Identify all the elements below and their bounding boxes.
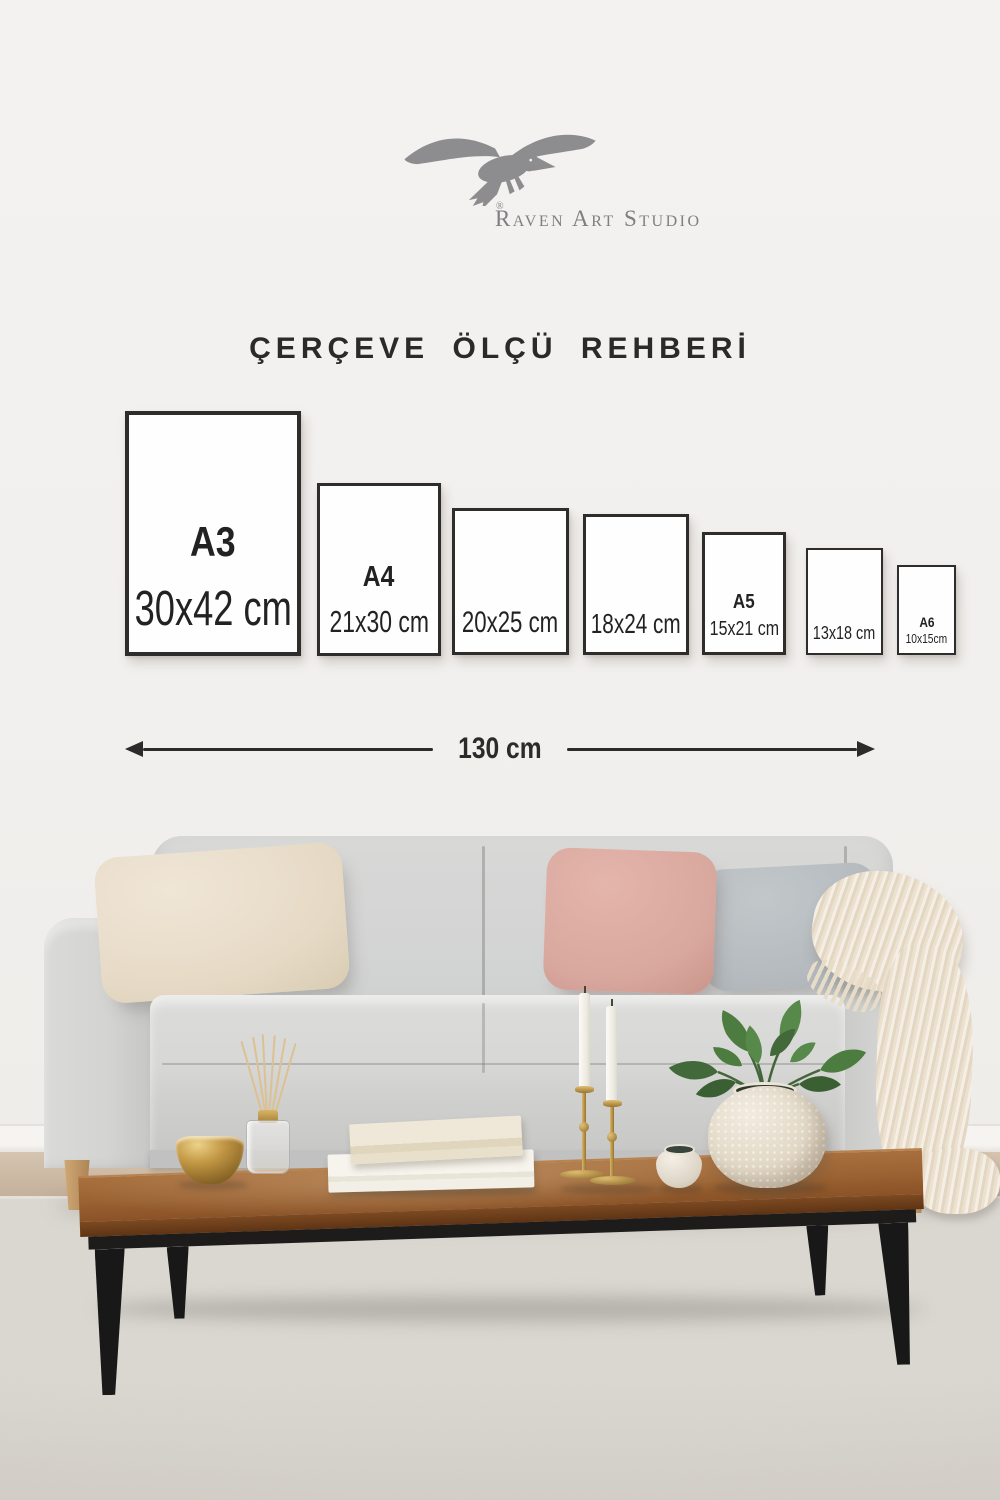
cream-pillow [93, 842, 351, 1005]
size-guide-title: ÇERÇEVE ÖLÇÜ REHBERİ [0, 332, 1000, 366]
frame-label: A5 [733, 592, 755, 612]
candlestick-cup [575, 1086, 594, 1093]
ruler-line [567, 748, 857, 751]
cup-opening [664, 1144, 695, 1155]
size-frame-18x24: 18x24 cm [583, 514, 689, 655]
candlestick-knob [579, 1122, 589, 1132]
knit-throw-floor-curl [912, 1148, 1000, 1214]
table-leg [806, 1225, 830, 1296]
frame-dimensions: 13x18 cm [813, 624, 875, 642]
frame-dimensions: 20x25 cm [462, 608, 558, 638]
candlestick-knob [607, 1132, 617, 1142]
frame-dimensions: 10x15cm [906, 633, 948, 646]
arrowhead-left-icon [125, 737, 143, 761]
taper-candle [606, 1006, 617, 1105]
rug-shading [0, 1380, 1000, 1500]
size-frame-20x25: 20x25 cm [452, 508, 569, 655]
sofa-width-ruler: 130 cm [125, 734, 875, 764]
candlestick-cup [603, 1100, 622, 1107]
table-leg [167, 1246, 191, 1319]
candlestick-base [590, 1176, 636, 1185]
pink-pillow [543, 847, 718, 995]
frame-dimensions: 21x30 cm [329, 606, 428, 637]
product-size-guide-image: Raven Art Studio® ÇERÇEVE ÖLÇÜ REHBERİ A… [0, 0, 1000, 1500]
size-frame-a3: A3 30x42 cm [125, 411, 301, 656]
frame-label: A6 [919, 615, 934, 629]
frame-label: A3 [190, 521, 236, 563]
frame-dimensions: 15x21 cm [709, 619, 778, 639]
size-frame-a5: A5 15x21 cm [702, 532, 786, 655]
taper-candle [579, 993, 590, 1089]
candles-shadow [560, 1184, 656, 1194]
brand-name: Raven Art Studio® [0, 206, 1000, 232]
ruler-line [143, 748, 433, 751]
brand-logo: Raven Art Studio® [0, 118, 1000, 238]
registered-mark: ® [496, 201, 506, 212]
reed-diffuser-bottle [246, 1120, 290, 1174]
raven-logo-icon [398, 128, 602, 206]
frame-label: A4 [363, 563, 395, 592]
size-frame-a6: A6 10x15cm [897, 565, 956, 655]
arrowhead-right-icon [857, 737, 875, 761]
frame-dimensions: 18x24 cm [591, 610, 681, 638]
brand-name-text: Raven Art Studio [495, 206, 702, 232]
ruler-label: 130 cm [458, 734, 541, 764]
frame-dimensions: 30x42 cm [134, 585, 291, 634]
seat-cushion-seam [482, 1003, 485, 1073]
size-frame-a4: A4 21x30 cm [317, 483, 441, 656]
size-frame-13x18: 13x18 cm [806, 548, 883, 655]
plant-pot [708, 1086, 826, 1188]
